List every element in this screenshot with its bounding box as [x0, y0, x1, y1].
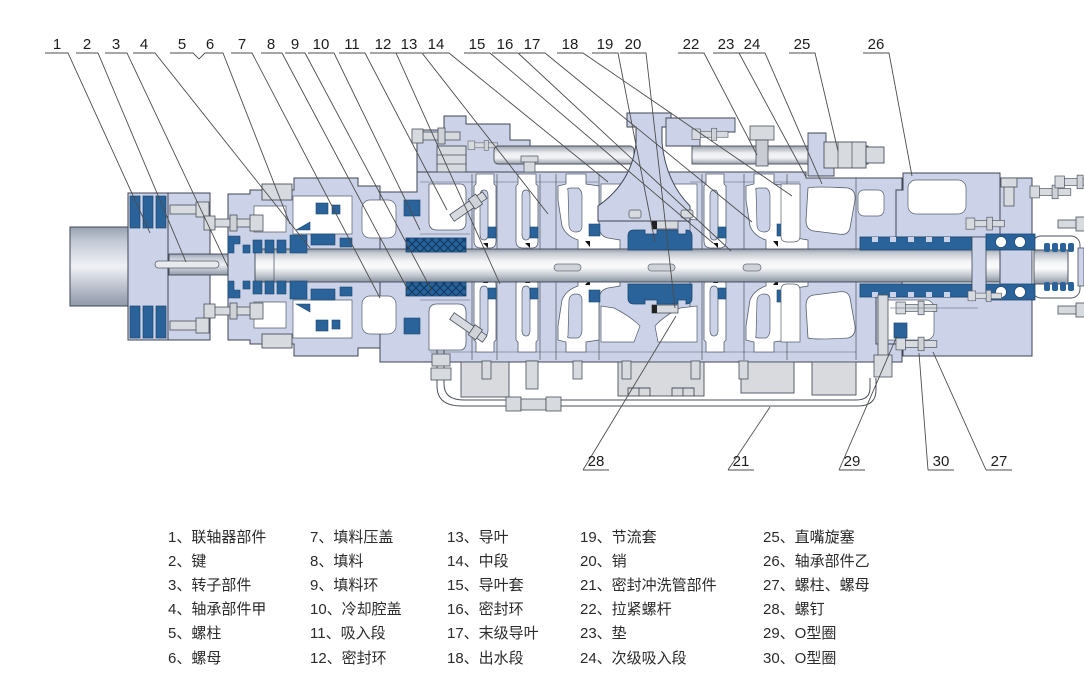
- svg-text:3: 3: [112, 36, 120, 53]
- svg-text:18、出水段: 18、出水段: [447, 650, 524, 667]
- svg-text:24、次级吸入段: 24、次级吸入段: [580, 650, 687, 667]
- svg-text:5、螺柱: 5、螺柱: [168, 625, 221, 642]
- svg-text:9: 9: [291, 36, 299, 53]
- svg-text:1、联轴器部件: 1、联轴器部件: [168, 529, 266, 546]
- svg-text:25、直嘴旋塞: 25、直嘴旋塞: [763, 528, 855, 546]
- svg-text:4、轴承部件甲: 4、轴承部件甲: [168, 601, 266, 618]
- svg-text:16: 16: [497, 36, 514, 53]
- svg-text:19: 19: [597, 36, 614, 53]
- svg-text:18: 18: [562, 36, 579, 53]
- svg-text:11: 11: [344, 36, 360, 53]
- svg-text:23: 23: [718, 36, 735, 53]
- svg-text:28: 28: [588, 453, 605, 470]
- svg-text:21、密封冲洗管部件: 21、密封冲洗管部件: [580, 577, 717, 594]
- svg-text:24: 24: [744, 36, 761, 53]
- svg-text:30、O型圈: 30、O型圈: [763, 650, 836, 667]
- svg-text:13、导叶: 13、导叶: [447, 529, 509, 546]
- svg-text:13: 13: [401, 36, 418, 53]
- svg-text:25: 25: [794, 36, 811, 53]
- svg-text:26、轴承部件乙: 26、轴承部件乙: [763, 553, 870, 570]
- svg-text:20、销: 20、销: [580, 553, 627, 570]
- svg-text:11、吸入段: 11、吸入段: [310, 625, 386, 642]
- svg-text:6: 6: [206, 36, 214, 53]
- svg-text:15、导叶套: 15、导叶套: [447, 577, 524, 594]
- svg-text:28、螺钉: 28、螺钉: [763, 601, 825, 618]
- svg-text:4: 4: [140, 36, 148, 53]
- svg-text:2: 2: [83, 36, 91, 53]
- svg-text:17、末级导叶: 17、末级导叶: [447, 625, 539, 642]
- svg-text:10: 10: [313, 36, 330, 53]
- svg-text:15: 15: [469, 36, 486, 53]
- svg-text:1: 1: [53, 36, 61, 53]
- svg-text:9、填料环: 9、填料环: [310, 577, 378, 594]
- svg-text:17: 17: [524, 36, 541, 53]
- svg-text:14: 14: [428, 36, 445, 53]
- svg-text:8: 8: [267, 36, 275, 53]
- svg-text:6、螺母: 6、螺母: [168, 650, 221, 667]
- svg-text:2、键: 2、键: [168, 553, 206, 570]
- svg-text:14、中段: 14、中段: [447, 553, 509, 570]
- svg-text:22、拉紧螺杆: 22、拉紧螺杆: [580, 601, 672, 618]
- svg-text:27、螺柱、螺母: 27、螺柱、螺母: [763, 577, 870, 594]
- svg-text:27: 27: [991, 453, 1008, 470]
- svg-text:12: 12: [375, 36, 392, 53]
- svg-text:10、冷却腔盖: 10、冷却腔盖: [310, 601, 402, 618]
- svg-text:8、填料: 8、填料: [310, 553, 363, 570]
- svg-text:21: 21: [733, 453, 750, 470]
- svg-text:5: 5: [178, 36, 186, 53]
- svg-text:29: 29: [844, 453, 861, 470]
- svg-text:20: 20: [625, 36, 642, 53]
- svg-text:19、节流套: 19、节流套: [580, 529, 657, 546]
- svg-text:30: 30: [933, 453, 950, 470]
- svg-text:22: 22: [683, 36, 700, 53]
- svg-text:16、密封环: 16、密封环: [447, 601, 524, 618]
- svg-text:23、垫: 23、垫: [580, 625, 627, 642]
- svg-text:3、转子部件: 3、转子部件: [168, 577, 251, 594]
- svg-text:12、密封环: 12、密封环: [310, 650, 387, 667]
- svg-text:29、O型圈: 29、O型圈: [763, 625, 836, 642]
- svg-text:7: 7: [238, 36, 246, 53]
- svg-text:7、填料压盖: 7、填料压盖: [310, 529, 393, 546]
- svg-text:26: 26: [868, 36, 885, 53]
